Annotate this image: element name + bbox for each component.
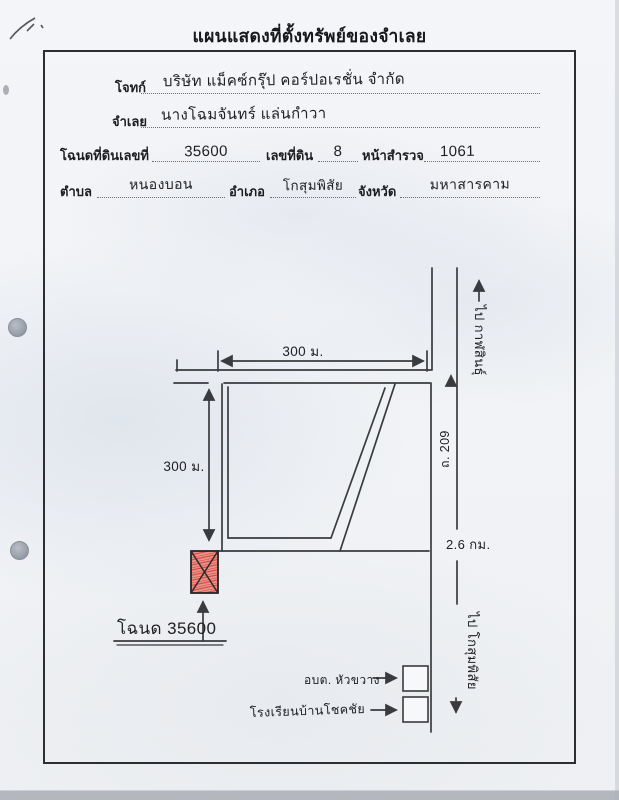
distance-label: 2.6 กม. <box>446 537 491 552</box>
ink-smudge <box>3 85 9 95</box>
parcel-inner-diagonal <box>331 388 385 538</box>
pen-scribble-mark <box>10 18 43 39</box>
property-location-map: 300 ม. 300 ม. ถ. 209 2.6 กม. ไป กาฬสินธุ… <box>0 0 619 800</box>
scanned-document-page: แผนแสดงที่ตั้งทรัพย์ของจำเลย โจทก์ บริษั… <box>0 0 619 800</box>
dimension-top-label: 300 ม. <box>282 344 323 359</box>
parcel-outer-diagonal <box>340 384 395 551</box>
deed-callout-label: โฉนด 35600 <box>117 618 216 638</box>
direction-north-label: ไป กาฬสินธุ์ <box>471 304 487 376</box>
landmark2-label: โรงเรียนบ้านโชคชัย <box>250 701 366 720</box>
direction-south-label: ไป โกสุมพิสัย <box>464 611 480 690</box>
landmark1-square <box>403 666 428 691</box>
dimension-left-label: 300 ม. <box>163 459 204 474</box>
road-number-label: ถ. 209 <box>438 430 452 468</box>
landmark1-label: อบต. หัวขวาง <box>304 673 380 687</box>
landmark2-square <box>403 697 428 722</box>
subject-parcel-marker <box>191 551 218 593</box>
